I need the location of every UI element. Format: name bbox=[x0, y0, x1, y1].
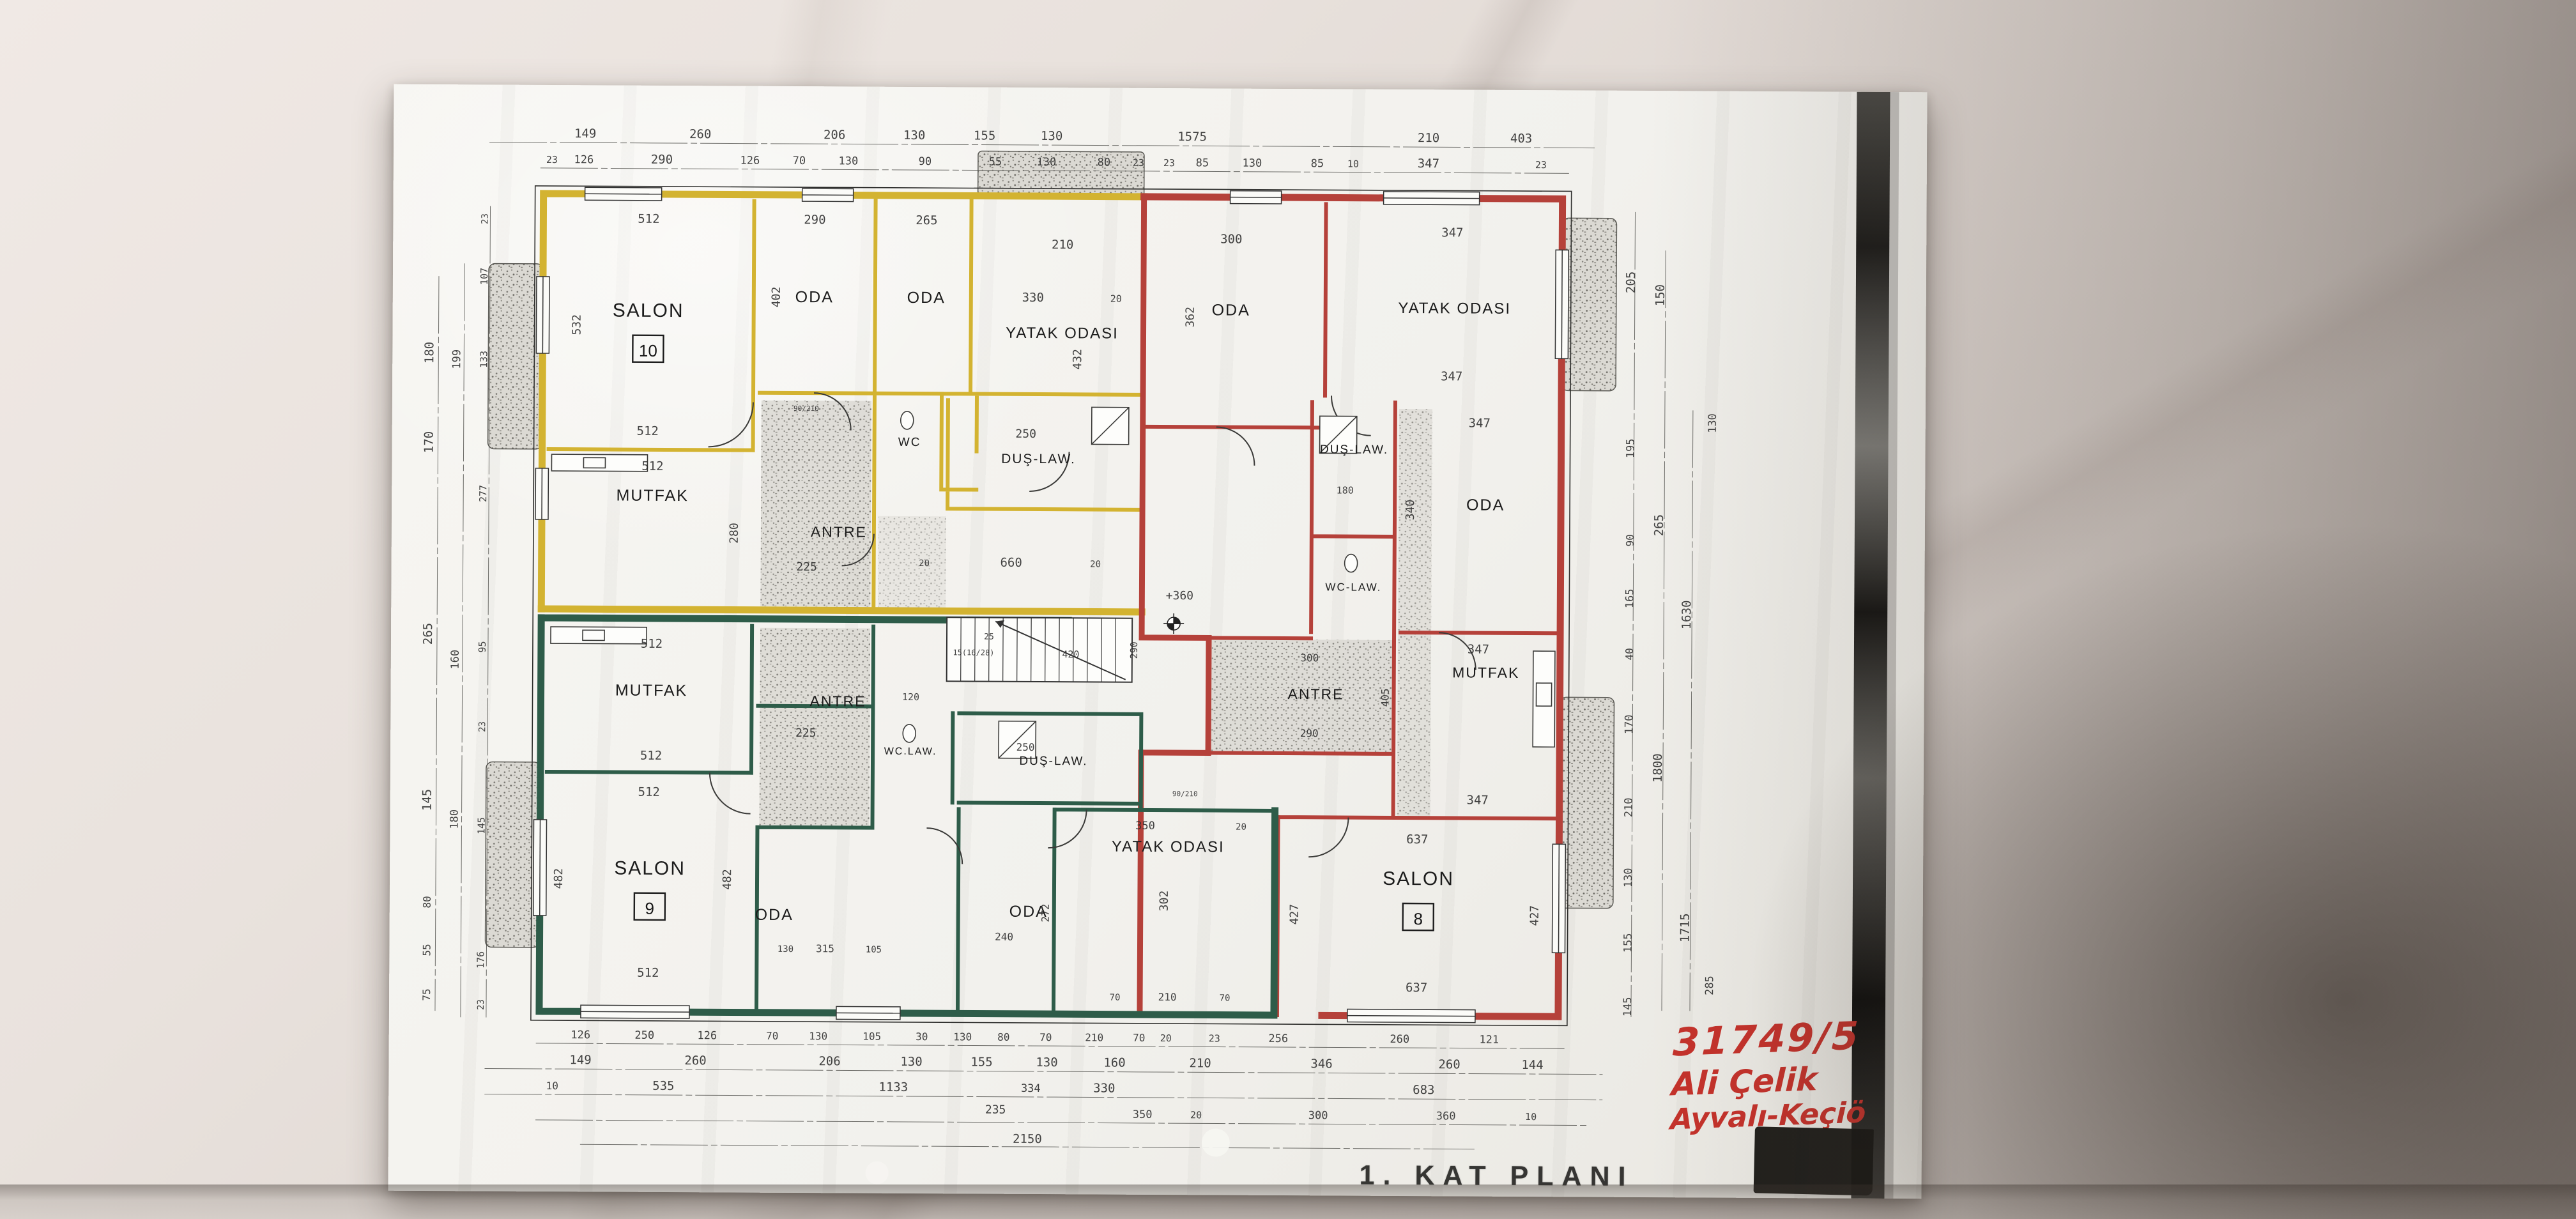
dim-text: 350 bbox=[1133, 1108, 1153, 1121]
dim-text: 180 bbox=[1337, 484, 1354, 496]
dim-text: 290 bbox=[651, 153, 673, 167]
dim-text: 23 bbox=[1209, 1032, 1220, 1044]
room-label: YATAK ODASI bbox=[1112, 838, 1225, 856]
dim-text: 210 bbox=[1158, 991, 1177, 1003]
dim-text: 70 bbox=[766, 1030, 778, 1042]
dim-text: 70 bbox=[793, 155, 806, 167]
handwritten-note: 31749/5 Ali Çelik Ayvalı-Keçiö bbox=[1670, 1012, 1923, 1136]
room-label: YATAK ODASI bbox=[1398, 300, 1511, 318]
dim-text: 130 bbox=[1622, 868, 1635, 887]
dim-text: 23 bbox=[1163, 157, 1175, 169]
dim-text: 90 bbox=[919, 155, 932, 168]
dim-text: 210 bbox=[1623, 797, 1636, 817]
dim-text: 180 bbox=[422, 342, 436, 364]
room-number: 9 bbox=[645, 899, 654, 918]
dim-text: 126 bbox=[574, 153, 594, 166]
dim-text: 130 bbox=[903, 128, 925, 142]
dim-text: 70 bbox=[1039, 1031, 1052, 1043]
dim-text: 482 bbox=[721, 869, 734, 890]
room-label: SALON bbox=[1383, 868, 1454, 890]
dim-text: 121 bbox=[1479, 1034, 1499, 1046]
balconies-hatched bbox=[485, 149, 1617, 953]
dim-text: 637 bbox=[1406, 981, 1427, 995]
walls-green-apartment bbox=[539, 618, 1276, 1015]
dim-text: 265 bbox=[916, 213, 937, 227]
dim-text: 362 bbox=[1184, 307, 1197, 328]
dim-text: 260 bbox=[689, 127, 711, 141]
dim-text: 512 bbox=[636, 424, 658, 438]
dim-text: 260 bbox=[684, 1054, 706, 1068]
dim-text: 277 bbox=[477, 485, 489, 502]
dim-text: 240 bbox=[995, 931, 1013, 943]
room-label: WC-LAW. bbox=[1325, 581, 1381, 593]
dim-text: 126 bbox=[571, 1029, 590, 1041]
dim-text: 225 bbox=[796, 560, 817, 574]
table-edge bbox=[0, 1184, 2576, 1219]
dim-text: 280 bbox=[728, 523, 741, 544]
dim-text: 432 bbox=[1071, 349, 1084, 370]
dim-text: 40 bbox=[1623, 648, 1636, 660]
dim-text: 23 bbox=[1133, 157, 1144, 169]
dim-text: 265 bbox=[421, 623, 435, 645]
dim-text: 170 bbox=[1623, 714, 1636, 734]
dim-text: 107 bbox=[479, 268, 490, 285]
dim-text: 30 bbox=[916, 1031, 928, 1043]
dim-text: 23 bbox=[546, 154, 558, 165]
dim-text: 130 bbox=[900, 1055, 922, 1069]
dim-text: 2150 bbox=[1013, 1132, 1042, 1146]
dim-text: 210 bbox=[1189, 1056, 1211, 1070]
dim-text: 315 bbox=[816, 942, 834, 954]
dim-text: 55 bbox=[989, 156, 1002, 169]
dim-text: 195 bbox=[1625, 438, 1637, 458]
dim-text: 105 bbox=[866, 945, 882, 955]
dim-text: 126 bbox=[740, 155, 760, 167]
walls-red-apartment bbox=[1140, 197, 1563, 1016]
dim-text: 130 bbox=[809, 1030, 827, 1042]
room-label: WC.LAW. bbox=[884, 746, 937, 757]
dim-text: 10 bbox=[546, 1080, 558, 1092]
dim-text: 427 bbox=[1528, 905, 1542, 926]
room-label: SALON bbox=[614, 858, 686, 880]
dim-text: 10 bbox=[1525, 1111, 1537, 1123]
dim-text: 302 bbox=[1158, 891, 1171, 912]
room-label: YATAK ODASI bbox=[1006, 325, 1119, 342]
dim-text: 145 bbox=[420, 789, 434, 811]
dim-text: 300 bbox=[1300, 652, 1319, 664]
dim-text: 225 bbox=[795, 726, 816, 740]
room-label: WC bbox=[898, 436, 921, 449]
dim-text: 70 bbox=[1110, 993, 1121, 1003]
room-label: ANTRE bbox=[1288, 686, 1344, 702]
dim-text: 70 bbox=[1220, 993, 1230, 1004]
dim-text: 420 bbox=[1062, 648, 1079, 660]
room-label: ODA bbox=[795, 288, 834, 306]
dim-text: 482 bbox=[552, 868, 565, 889]
paper-holes bbox=[866, 1127, 1230, 1186]
dim-text: 199 bbox=[450, 349, 463, 369]
dim-text: 130 bbox=[1706, 413, 1719, 433]
dim-text: 15(16/28) bbox=[953, 648, 994, 657]
dim-text: 1133 bbox=[878, 1080, 908, 1094]
dim-text: 403 bbox=[1510, 132, 1532, 146]
dim-text: 290 bbox=[1128, 641, 1140, 659]
dim-text: 55 bbox=[420, 944, 433, 956]
dim-text: 70 bbox=[1133, 1032, 1145, 1044]
dim-text: 250 bbox=[634, 1029, 654, 1042]
dim-text: 130 bbox=[953, 1031, 972, 1043]
dim-text: 20 bbox=[1190, 1109, 1202, 1121]
dim-text: 23 bbox=[476, 999, 486, 1010]
dim-text: 160 bbox=[1103, 1056, 1125, 1070]
dim-text: 285 bbox=[1703, 976, 1716, 995]
dim-text: 405 bbox=[1379, 688, 1391, 707]
dim-text: 1630 bbox=[1680, 600, 1694, 629]
dim-text: 85 bbox=[1196, 157, 1209, 169]
room-label: MUTFAK bbox=[615, 682, 688, 700]
dim-text: 170 bbox=[422, 431, 436, 453]
dim-text: +360 bbox=[1166, 589, 1193, 602]
dim-text: 235 bbox=[985, 1103, 1006, 1117]
dim-text: 350 bbox=[1135, 820, 1155, 832]
room-label: DUŞ-LAW. bbox=[1019, 755, 1087, 769]
dim-text: 206 bbox=[824, 128, 845, 142]
dim-text: 130 bbox=[839, 155, 859, 167]
dim-text: 683 bbox=[1413, 1083, 1434, 1097]
dim-text: 340 bbox=[1404, 500, 1417, 521]
dim-text: 512 bbox=[640, 749, 662, 763]
room-label: ANTRE bbox=[811, 523, 867, 540]
dim-text: 360 bbox=[1436, 1110, 1456, 1123]
dim-text: 210 bbox=[1418, 131, 1439, 145]
dim-text: 20 bbox=[1160, 1032, 1172, 1044]
floor-plan-paper: SALONODAODAYATAK ODASIMUTFAKWCDUŞ-LAW.AN… bbox=[388, 84, 1927, 1199]
dim-text: 512 bbox=[641, 637, 663, 651]
dim-text: 23 bbox=[1535, 159, 1547, 171]
room-label: DUŞ-LAW. bbox=[1001, 452, 1076, 467]
dim-text: 256 bbox=[1268, 1032, 1288, 1045]
dim-text: 20 bbox=[1090, 559, 1101, 569]
dim-text: 130 bbox=[1037, 156, 1057, 169]
dim-text: 334 bbox=[1021, 1082, 1041, 1095]
dim-text: 250 bbox=[1016, 741, 1035, 753]
elevation-symbol bbox=[1163, 613, 1184, 634]
dim-text: 347 bbox=[1441, 369, 1462, 383]
dim-text: 512 bbox=[638, 212, 659, 226]
dim-text: 23 bbox=[480, 213, 490, 224]
room-label: MUTFAK bbox=[616, 487, 689, 505]
dim-text: 90 bbox=[1624, 534, 1636, 546]
dim-text: 130 bbox=[1036, 1055, 1057, 1069]
dim-text: 347 bbox=[1469, 417, 1491, 431]
dim-text: 105 bbox=[862, 1031, 881, 1043]
dim-text: 20 bbox=[1110, 293, 1122, 305]
dim-text: 133 bbox=[478, 351, 489, 368]
dim-text: 130 bbox=[1041, 129, 1062, 143]
dim-text: 1575 bbox=[1177, 130, 1207, 144]
dim-text: 347 bbox=[1441, 226, 1463, 240]
room-label: DUŞ-LAW. bbox=[1320, 443, 1388, 457]
dim-text: 265 bbox=[1652, 514, 1666, 536]
dim-text: 210 bbox=[1052, 238, 1073, 252]
room-label: ODA bbox=[1466, 496, 1505, 514]
dim-text: 347 bbox=[1466, 793, 1488, 808]
dim-text: 120 bbox=[902, 691, 919, 703]
dim-text: 210 bbox=[1085, 1031, 1103, 1043]
dim-text: 149 bbox=[569, 1053, 591, 1067]
dim-text: 260 bbox=[1390, 1033, 1409, 1046]
dim-text: 23 bbox=[477, 721, 487, 732]
room-label: SALON bbox=[613, 300, 684, 322]
dim-text: 130 bbox=[1243, 157, 1262, 170]
dim-text: 1800 bbox=[1651, 753, 1665, 783]
dim-text: 20 bbox=[919, 558, 930, 569]
dim-text: 290 bbox=[1300, 727, 1319, 739]
dim-text: 130 bbox=[778, 944, 793, 954]
dim-text: 90/210 bbox=[1172, 790, 1198, 798]
dim-text: 180 bbox=[448, 809, 461, 829]
room-number: 10 bbox=[639, 341, 657, 360]
dim-text: 512 bbox=[641, 459, 663, 473]
dim-text: 149 bbox=[574, 126, 596, 141]
dim-text: 25 bbox=[984, 632, 994, 642]
dim-text: 145 bbox=[475, 817, 487, 834]
dim-text: 165 bbox=[1623, 588, 1636, 608]
dim-text: 290 bbox=[804, 213, 825, 227]
dim-text: 90/210 bbox=[793, 404, 819, 413]
dim-text: 535 bbox=[652, 1079, 674, 1093]
dim-text: 330 bbox=[1022, 291, 1044, 305]
dim-text: 126 bbox=[697, 1029, 717, 1042]
dim-text: 145 bbox=[1621, 997, 1634, 1016]
dim-text: 347 bbox=[1468, 643, 1489, 657]
dim-text: 300 bbox=[1220, 233, 1242, 247]
dim-text: 402 bbox=[770, 287, 783, 308]
room-label: ODA bbox=[907, 289, 946, 307]
dim-text: 150 bbox=[1653, 284, 1667, 306]
dim-text: 512 bbox=[637, 966, 659, 980]
dim-text: 260 bbox=[1438, 1057, 1460, 1071]
dim-text: 637 bbox=[1406, 832, 1428, 847]
dim-text: 155 bbox=[970, 1055, 992, 1069]
dim-text: 330 bbox=[1093, 1081, 1115, 1095]
dim-text: 80 bbox=[1098, 156, 1111, 169]
dim-text: 85 bbox=[1311, 157, 1324, 170]
dim-text: 205 bbox=[1624, 272, 1638, 293]
dim-text: 80 bbox=[997, 1031, 1009, 1043]
dim-text: 10 bbox=[1347, 158, 1359, 170]
dim-text: 80 bbox=[421, 896, 433, 908]
room-label: ODA bbox=[755, 906, 793, 924]
room-number: 8 bbox=[1413, 909, 1423, 928]
dim-text: 347 bbox=[1418, 157, 1439, 171]
dim-text: 532 bbox=[570, 314, 583, 335]
dim-text: 155 bbox=[1621, 933, 1634, 953]
room-label: MUTFAK bbox=[1452, 664, 1519, 681]
photo-scene: SALONODAODAYATAK ODASIMUTFAKWCDUŞ-LAW.AN… bbox=[0, 0, 2576, 1219]
dim-text: 176 bbox=[475, 951, 486, 969]
dim-text: 346 bbox=[1310, 1057, 1332, 1071]
dim-text: 660 bbox=[1000, 556, 1022, 570]
dim-text: 144 bbox=[1521, 1058, 1543, 1072]
dim-text: 95 bbox=[477, 641, 488, 652]
dim-text: 250 bbox=[1015, 427, 1036, 441]
dim-text: 75 bbox=[420, 988, 433, 1000]
dim-text: 1715 bbox=[1678, 913, 1692, 942]
dim-text: 427 bbox=[1288, 904, 1301, 925]
room-label: ANTRE bbox=[809, 693, 866, 709]
dim-text: 155 bbox=[974, 128, 995, 142]
corridors-hatched bbox=[759, 401, 1432, 831]
dim-text: 272 bbox=[1039, 904, 1052, 923]
room-label: ODA bbox=[1212, 301, 1250, 319]
dim-text: 512 bbox=[638, 785, 660, 799]
dim-text: 300 bbox=[1308, 1109, 1328, 1122]
dim-text: 206 bbox=[818, 1054, 840, 1068]
dim-text: 20 bbox=[1236, 822, 1246, 832]
dim-text: 160 bbox=[449, 650, 462, 670]
